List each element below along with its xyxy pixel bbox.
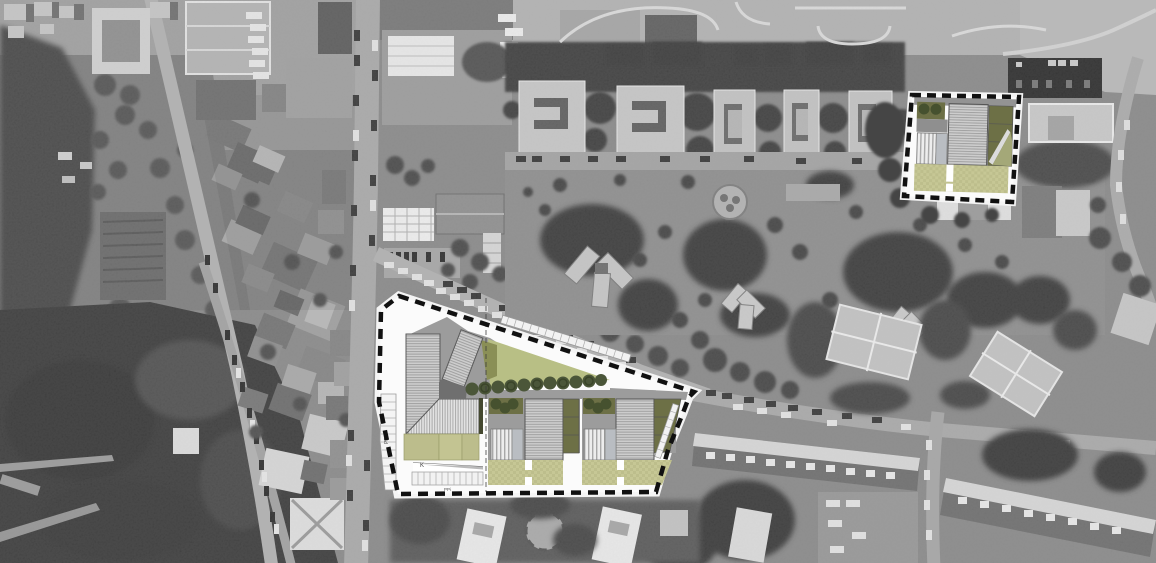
svg-text:PPi: PPi	[444, 487, 451, 492]
svg-text:K: K	[420, 463, 424, 469]
